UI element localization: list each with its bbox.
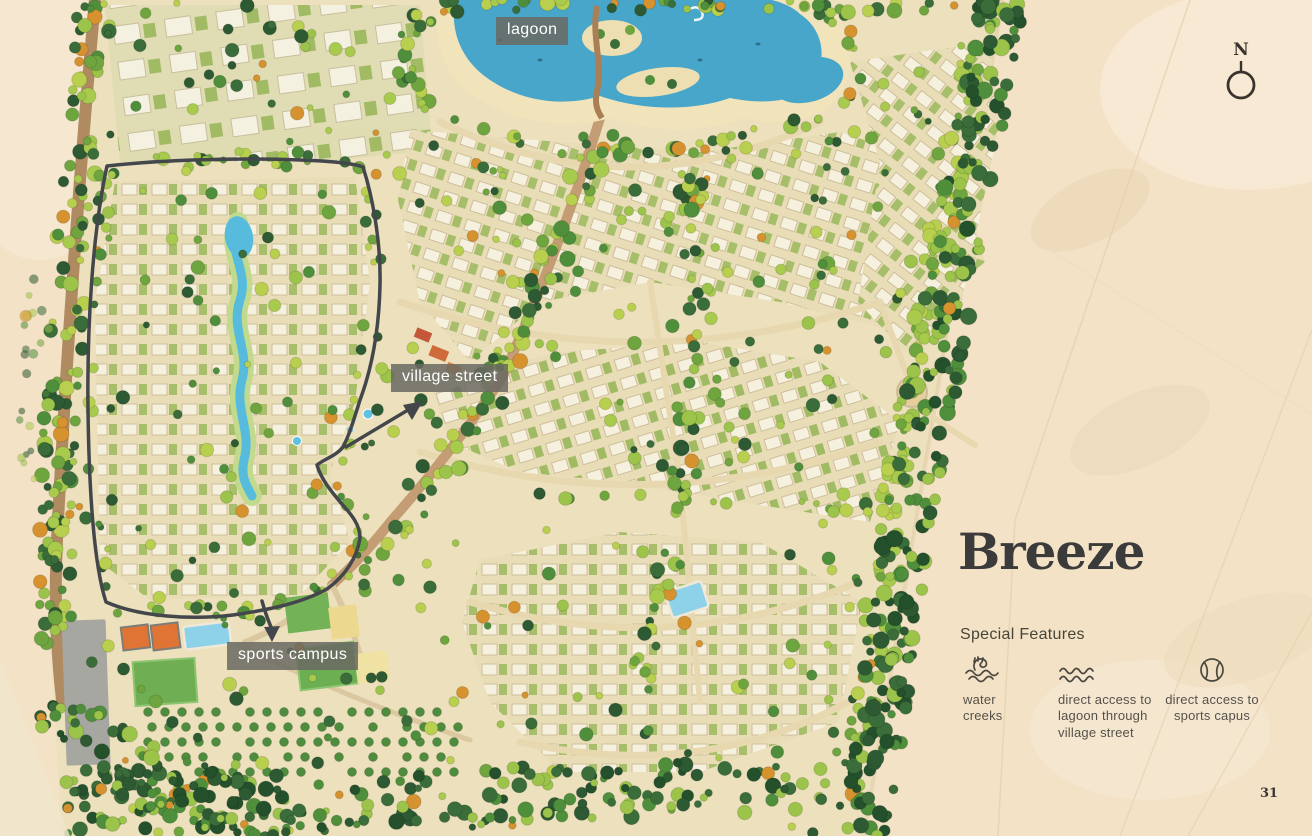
feature-water-creeks: water creeks (963, 652, 1058, 725)
special-features-heading: Special Features (960, 626, 1085, 644)
page-number: 31 (1260, 786, 1278, 801)
water-creek-icon (963, 654, 1005, 684)
brochure-page: lagoon village street sports campus Bree… (0, 0, 1312, 836)
lagoon-label: lagoon (496, 17, 568, 45)
compass-north-label: N (1221, 42, 1261, 59)
feature-caption: direct access to sports capus (1156, 692, 1268, 725)
waves-icon (1058, 664, 1100, 684)
page-title: Breeze (958, 522, 1144, 581)
feature-caption: water creeks (963, 692, 1058, 725)
sports-campus-label: sports campus (227, 642, 358, 670)
feature-sports-access: direct access to sports capus (1156, 652, 1268, 725)
village-street-label: village street (391, 364, 508, 392)
compass: N (1221, 42, 1261, 106)
tennis-ball-icon (1198, 656, 1226, 684)
compass-icon (1221, 59, 1261, 101)
